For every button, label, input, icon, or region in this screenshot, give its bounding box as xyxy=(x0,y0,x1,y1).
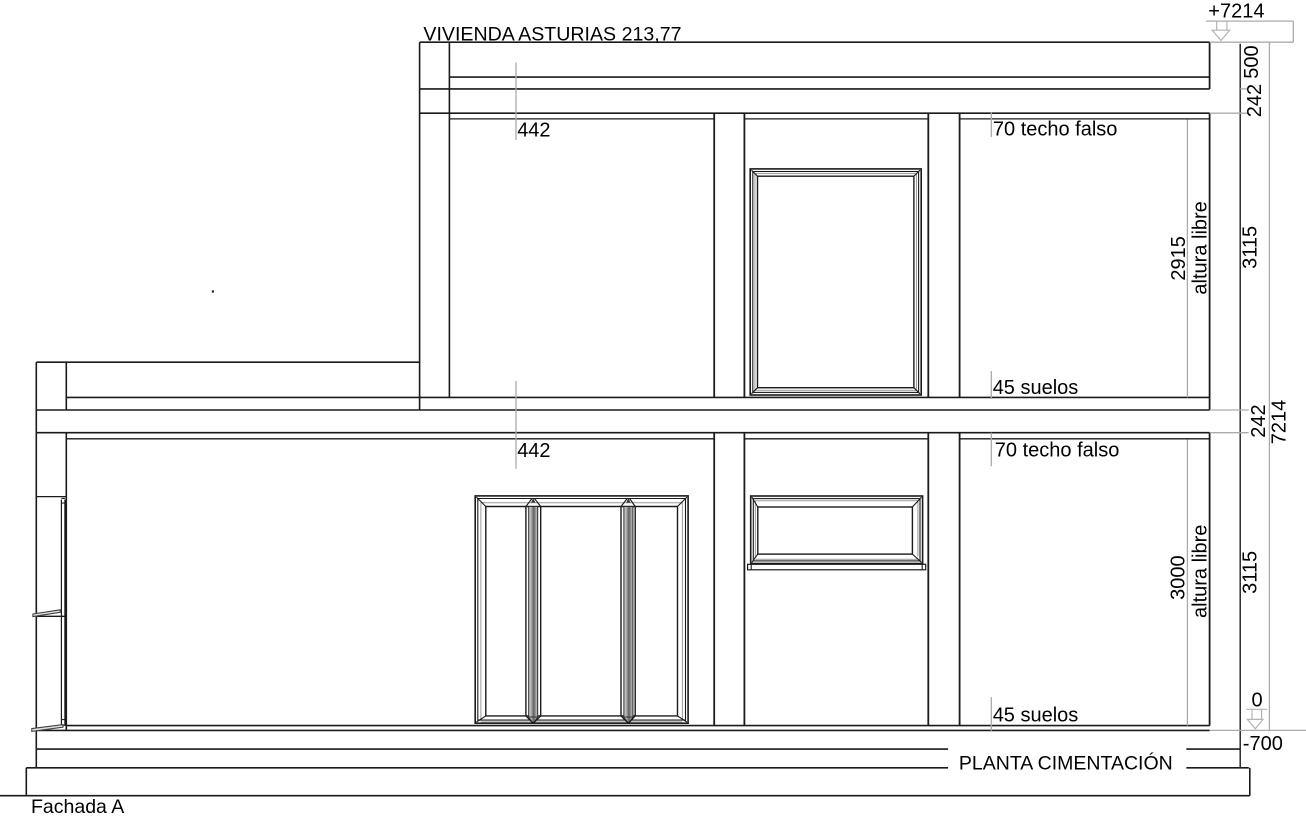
svg-text:+7214: +7214 xyxy=(1208,1,1264,23)
svg-text:70 techo falso: 70 techo falso xyxy=(993,119,1118,141)
svg-text:70 techo falso: 70 techo falso xyxy=(995,439,1120,461)
svg-text:VIVIENDA ASTURIAS 213,77: VIVIENDA ASTURIAS 213,77 xyxy=(423,24,681,46)
svg-text:242: 242 xyxy=(1244,84,1266,117)
svg-text:3000: 3000 xyxy=(1168,555,1190,600)
svg-text:3115: 3115 xyxy=(1240,226,1262,269)
svg-text:altura libre: altura libre xyxy=(1189,201,1211,294)
svg-text:3115: 3115 xyxy=(1239,551,1261,594)
svg-text:7214: 7214 xyxy=(1269,400,1291,445)
svg-text:500: 500 xyxy=(1241,45,1263,78)
svg-text:45 suelos: 45 suelos xyxy=(993,377,1079,399)
svg-text:0: 0 xyxy=(1252,689,1263,711)
svg-text:-700: -700 xyxy=(1243,733,1283,755)
svg-text:altura libre: altura libre xyxy=(1190,525,1212,618)
svg-text:442: 442 xyxy=(517,440,550,462)
svg-text:Fachada A: Fachada A xyxy=(31,796,124,818)
svg-text:PLANTA CIMENTACIÓN: PLANTA CIMENTACIÓN xyxy=(959,752,1173,775)
svg-text:242: 242 xyxy=(1248,404,1270,437)
svg-text:2915: 2915 xyxy=(1168,236,1190,281)
svg-text:442: 442 xyxy=(517,119,550,141)
svg-text:45 suelos: 45 suelos xyxy=(993,705,1079,727)
